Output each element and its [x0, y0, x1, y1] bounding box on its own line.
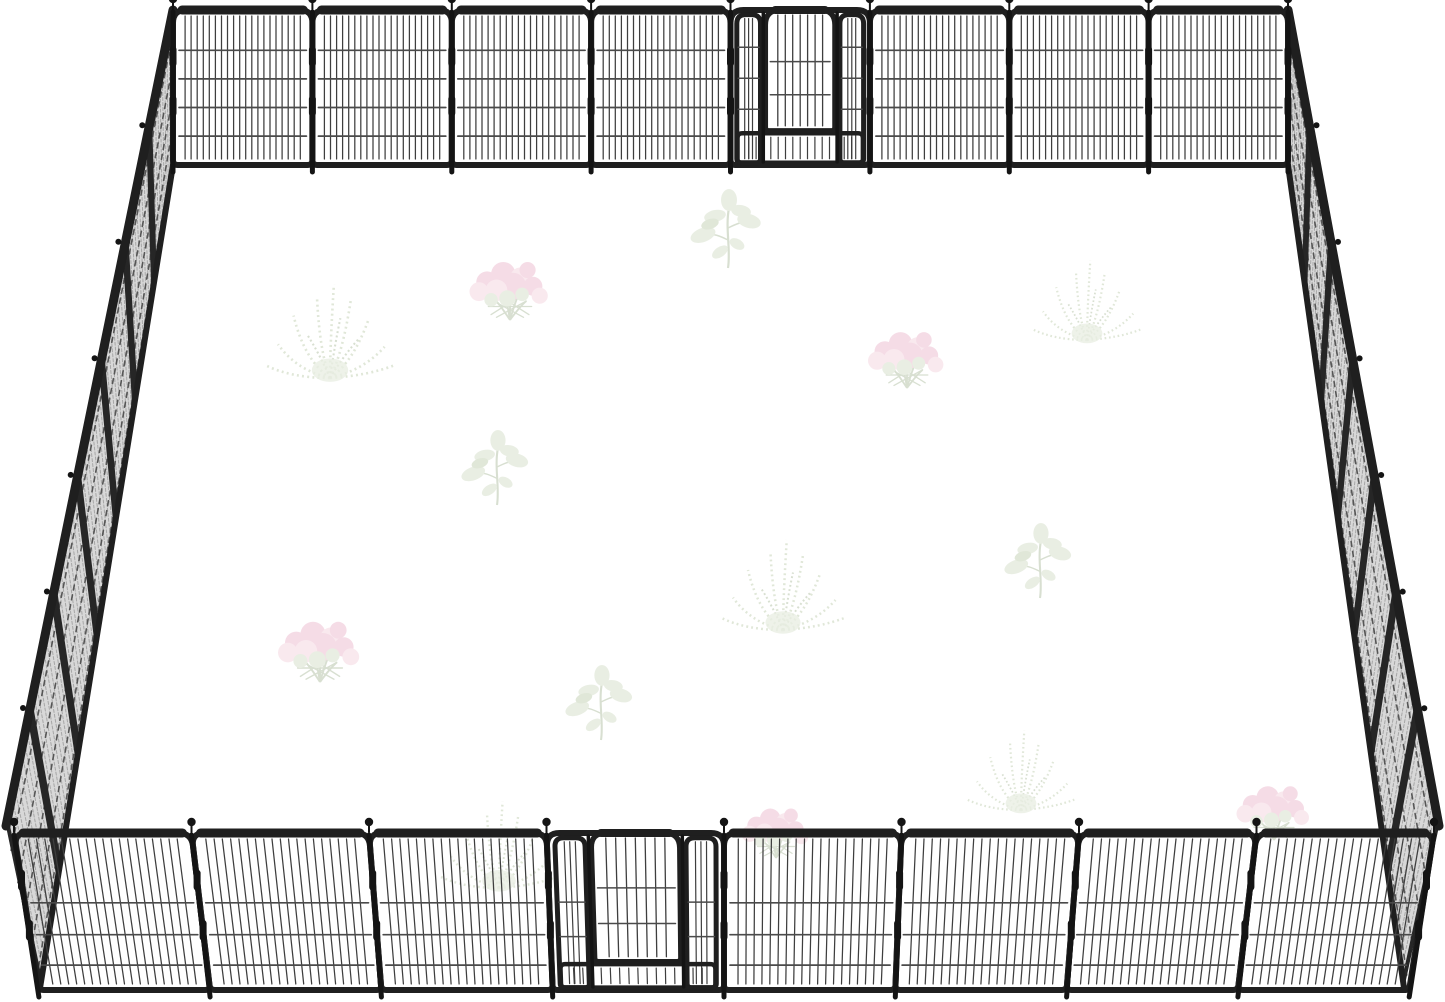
- post-ball-finial: [897, 818, 905, 826]
- wall-hinge-knob: [1400, 589, 1406, 595]
- wall-hinge-knob: [68, 472, 74, 478]
- wall-hinge-knob: [92, 355, 98, 361]
- wall-hinge-knob: [139, 122, 145, 128]
- playpen-illustration: [0, 0, 1445, 1002]
- wall-hinge-knob: [1335, 239, 1341, 245]
- product-image: [0, 0, 1445, 1002]
- post-ball-finial: [1252, 818, 1260, 826]
- post-ball-finial: [365, 818, 373, 826]
- wall-hinge-knob: [1357, 355, 1363, 361]
- post-ball-finial: [1075, 818, 1083, 826]
- wall-hinge-knob: [1378, 472, 1384, 478]
- post-ball-finial: [542, 818, 550, 826]
- wall-hinge-knob: [1421, 705, 1427, 711]
- wall-hinge-knob: [1314, 122, 1320, 128]
- post-ball-finial: [1430, 818, 1438, 826]
- wall-hinge-knob: [115, 239, 121, 245]
- post-ball-finial: [720, 818, 728, 826]
- wall-hinge-knob: [44, 589, 50, 595]
- wall-hinge-knob: [20, 705, 26, 711]
- post-ball-finial: [10, 818, 18, 826]
- post-ball-finial: [187, 818, 195, 826]
